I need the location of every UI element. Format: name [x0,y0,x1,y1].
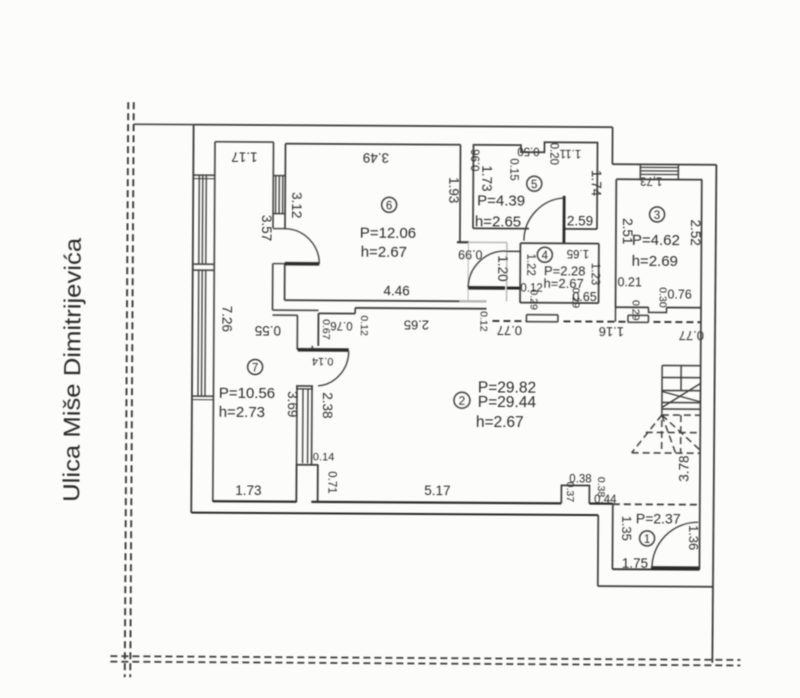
svg-text:2: 2 [459,394,466,408]
svg-text:1.23: 1.23 [589,263,601,285]
svg-text:h=2.67: h=2.67 [476,414,524,431]
svg-text:0.76: 0.76 [667,288,691,302]
svg-text:0.14: 0.14 [312,355,333,367]
svg-text:7: 7 [252,362,258,374]
svg-text:0.12: 0.12 [477,311,489,332]
svg-text:0.99: 0.99 [458,247,482,261]
svg-text:5: 5 [531,179,537,191]
svg-text:4: 4 [542,250,549,262]
svg-text:0.38: 0.38 [569,473,591,485]
svg-text:3: 3 [654,210,660,222]
svg-text:0.77: 0.77 [497,323,522,338]
svg-text:0.14: 0.14 [313,451,334,463]
svg-text:1.93: 1.93 [446,177,461,203]
svg-text:5.17: 5.17 [424,483,450,498]
svg-text:2.65: 2.65 [404,317,429,332]
svg-text:1,73: 1,73 [640,174,662,186]
svg-text:0.20: 0.20 [547,143,559,165]
svg-text:P=4.62: P=4.62 [632,232,680,249]
svg-text:1.16: 1.16 [599,324,624,339]
svg-text:1.75: 1.75 [622,556,648,571]
svg-text:3.78: 3.78 [676,455,691,481]
svg-text:3.49: 3.49 [363,150,389,165]
svg-text:2.38: 2.38 [320,392,335,418]
svg-text:0.71: 0.71 [325,471,337,493]
svg-text:0.50: 0.50 [517,145,539,157]
svg-text:6: 6 [386,200,392,212]
svg-text:3.57: 3.57 [259,215,274,241]
svg-text:1.35: 1.35 [619,516,634,541]
svg-text:7.26: 7.26 [219,306,234,332]
svg-text:4.46: 4.46 [383,283,409,298]
svg-text:1: 1 [644,534,650,546]
svg-text:h=2.65: h=2.65 [475,213,521,230]
svg-text:0.76: 0.76 [330,319,352,331]
svg-text:2.52: 2.52 [688,219,703,245]
svg-text:1.20: 1.20 [495,255,510,281]
svg-text:1.74: 1.74 [589,170,604,197]
svg-text:0.12: 0.12 [358,315,370,336]
svg-text:3.12: 3.12 [289,192,304,218]
svg-text:1.22: 1.22 [524,253,536,275]
svg-text:1.73: 1.73 [479,165,494,191]
svg-text:3.69: 3.69 [285,391,300,417]
svg-text:0.67: 0.67 [320,319,332,340]
svg-text:1.65: 1.65 [567,247,589,259]
svg-text:1.17: 1.17 [231,149,257,164]
svg-text:0.55: 0.55 [255,323,281,338]
svg-text:1.11: 1.11 [560,147,582,159]
svg-text:P=29.44: P=29.44 [478,394,537,411]
svg-text:2.51: 2.51 [620,218,635,244]
svg-text:h=2.67: h=2.67 [361,244,407,261]
svg-text:0.65: 0.65 [572,290,596,304]
svg-text:1.73: 1.73 [235,483,261,498]
svg-text:h=2.69: h=2.69 [632,253,678,270]
svg-text:P=10.56: P=10.56 [219,385,275,402]
svg-text:1.36: 1.36 [686,525,701,550]
svg-text:0.29: 0.29 [629,300,641,321]
svg-text:0.30: 0.30 [657,287,669,308]
svg-text:Ulica Miše Dimitrijevića: Ulica Miše Dimitrijevića [58,238,86,502]
svg-text:2.59: 2.59 [567,213,593,228]
svg-text:h=2.73: h=2.73 [219,404,265,421]
svg-text:P=12.06: P=12.06 [360,225,416,242]
svg-text:P=4.39: P=4.39 [477,192,525,209]
svg-text:0.21: 0.21 [617,275,641,289]
svg-text:0.15: 0.15 [507,158,519,180]
svg-text:0.29: 0.29 [527,289,539,310]
svg-text:P=2.37: P=2.37 [636,510,681,526]
